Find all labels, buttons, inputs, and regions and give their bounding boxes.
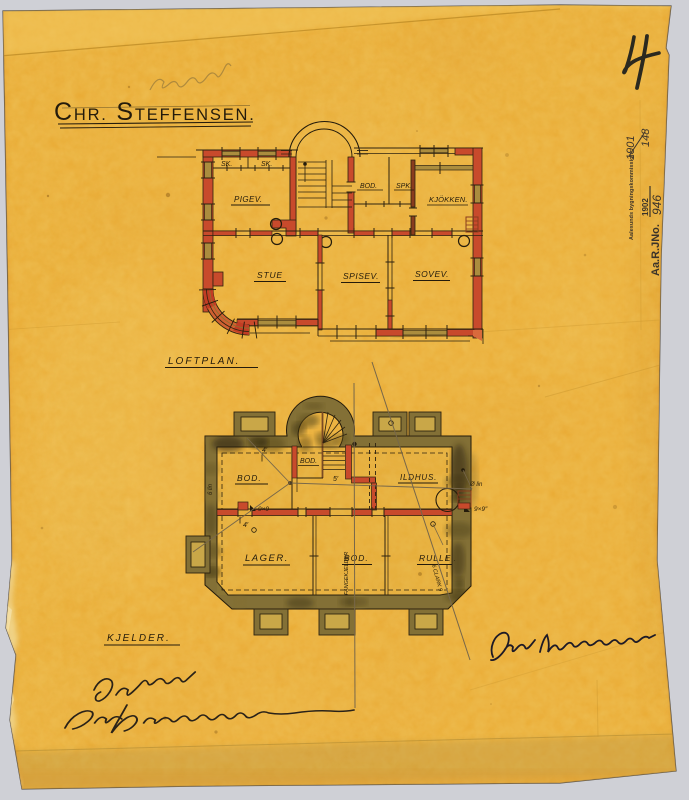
svg-text:9×9″: 9×9″ bbox=[474, 506, 488, 513]
svg-text:SOVEV.: SOVEV. bbox=[415, 269, 449, 279]
svg-text:946: 946 bbox=[650, 195, 664, 215]
svg-text:BOD.: BOD. bbox=[360, 183, 377, 190]
svg-text:PIGEV.: PIGEV. bbox=[234, 195, 262, 204]
svg-text:Aa.R.JNo.: Aa.R.JNo. bbox=[650, 224, 662, 276]
svg-text:1902: 1902 bbox=[641, 198, 650, 216]
svg-text:SK.: SK. bbox=[221, 161, 232, 168]
svg-text:.: . bbox=[454, 556, 456, 563]
svg-text:SK.: SK. bbox=[261, 161, 272, 168]
svg-text:BOD.: BOD. bbox=[237, 473, 262, 483]
svg-text:FANGEKJELDER: FANGEKJELDER bbox=[344, 552, 350, 595]
svg-text:ILDHUS.: ILDHUS. bbox=[400, 473, 437, 482]
svg-text:Aalesunds bygningskommission: Aalesunds bygningskommission bbox=[629, 153, 635, 240]
svg-text:SPISEV.: SPISEV. bbox=[343, 271, 379, 281]
svg-text:4′: 4′ bbox=[262, 447, 268, 454]
svg-text:STUE: STUE bbox=[257, 270, 283, 280]
svg-text:5′: 5′ bbox=[333, 476, 339, 483]
svg-text:9×9: 9×9 bbox=[258, 506, 269, 513]
svg-text:Ø lin: Ø lin bbox=[469, 482, 483, 488]
svg-text:6 lin: 6 lin bbox=[208, 483, 214, 495]
svg-text:KJELDER.: KJELDER. bbox=[107, 633, 171, 644]
svg-text:4′: 4′ bbox=[243, 522, 249, 529]
svg-text:LOFTPLAN.: LOFTPLAN. bbox=[168, 356, 240, 367]
svg-text:KJÖKKEN.: KJÖKKEN. bbox=[429, 195, 468, 204]
svg-text:SPK.: SPK. bbox=[396, 183, 412, 190]
svg-text:BOD.: BOD. bbox=[300, 458, 317, 465]
svg-text:LAGER.: LAGER. bbox=[245, 553, 289, 564]
